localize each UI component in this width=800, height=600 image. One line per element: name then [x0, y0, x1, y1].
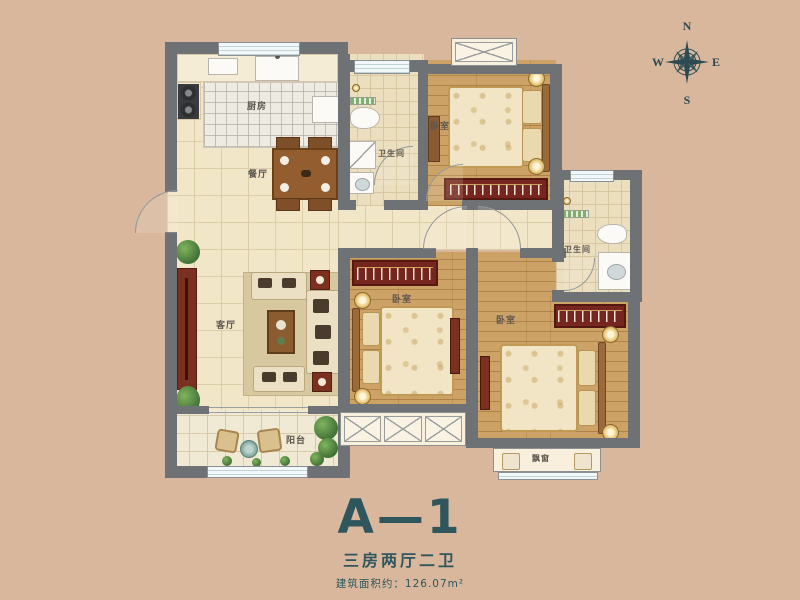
tv-board [450, 318, 460, 374]
balcony-chair [257, 428, 283, 454]
headboard [352, 308, 360, 392]
room-label-bedroom2: 卧室 [392, 292, 412, 305]
pillow [522, 128, 542, 162]
basin [607, 264, 626, 280]
wall [552, 170, 564, 262]
toilet-icon [350, 107, 380, 129]
tv-board [480, 356, 490, 410]
pillow [362, 350, 380, 384]
centerpiece [301, 170, 311, 177]
plant-icon [314, 416, 338, 440]
title-block: A—1 三房两厅二卫 建筑面积约：126.07m² [250, 494, 550, 591]
bay-window-pane [384, 416, 421, 442]
hangers [357, 267, 433, 280]
hangers [450, 184, 542, 195]
sofa [253, 366, 305, 392]
side-table [310, 270, 330, 290]
plan-area: 建筑面积约：126.07m² [250, 576, 550, 591]
wall [165, 466, 207, 478]
wall [338, 54, 350, 210]
side-table-decor [318, 378, 326, 386]
stove-icon [178, 84, 199, 119]
plate [280, 183, 289, 192]
bay-window [451, 38, 517, 66]
wall [628, 302, 640, 448]
wardrobe [352, 260, 438, 286]
headboard [598, 342, 606, 434]
bathroom-sink [598, 252, 632, 290]
bedside-lamp-icon [354, 388, 371, 405]
compass-icon: N S W E [650, 12, 724, 112]
coffee-table [267, 310, 295, 354]
svg-text:S: S [684, 93, 691, 107]
plate [321, 156, 330, 165]
plate [321, 183, 330, 192]
seat-cushion [574, 453, 592, 470]
cushion [262, 372, 276, 382]
dining-table [272, 148, 338, 200]
side-table-decor [316, 276, 324, 284]
seat-cushion [502, 453, 520, 470]
plant-icon [280, 456, 290, 466]
wall [165, 42, 177, 192]
pillow [522, 90, 542, 124]
bedside-lamp-icon [354, 292, 371, 309]
wall [338, 200, 356, 210]
tv-cabinet [177, 268, 197, 390]
bay-window-pane [425, 416, 462, 442]
window [218, 42, 300, 56]
wall [165, 232, 177, 478]
toilet-icon [597, 224, 627, 244]
window [354, 60, 410, 74]
wall [466, 438, 640, 448]
bed [448, 86, 524, 168]
wall [630, 170, 642, 302]
bay-window-pane [344, 416, 381, 442]
faucet-icon [352, 84, 360, 92]
pillow [362, 312, 380, 346]
plate [280, 156, 289, 165]
plant-icon [222, 456, 232, 466]
balcony-table [240, 440, 258, 458]
faucet-icon [563, 197, 571, 205]
table-decor [276, 320, 286, 330]
pillow [578, 390, 596, 426]
balcony-railing [207, 466, 308, 478]
side-table [312, 372, 332, 392]
plan-title: A—1 [250, 494, 550, 541]
bay-window [340, 412, 466, 446]
kitchen-cutting-board [208, 58, 238, 75]
cushion [313, 351, 329, 365]
bay-window-glass [498, 472, 598, 480]
kitchen-sink [255, 56, 299, 81]
window-plants [350, 97, 376, 105]
svg-text:E: E [712, 55, 720, 69]
bathroom-sink [349, 172, 374, 194]
sliding-door [209, 407, 308, 413]
shower-icon [349, 141, 376, 169]
wardrobe [554, 304, 626, 328]
wall [338, 248, 350, 414]
cushion [313, 299, 329, 313]
window-plants [562, 210, 589, 218]
plant-icon [176, 240, 200, 264]
dining-chair [308, 198, 332, 211]
balcony-chair [214, 428, 239, 453]
bedside-lamp-icon [602, 326, 619, 343]
pillow [578, 350, 596, 386]
floorplan-canvas: 厨房 餐厅 客厅 卧室 卧室 卧室 卫生间 卫生间 阳台 飘窗 N [0, 0, 800, 600]
headboard [542, 84, 550, 172]
svg-text:W: W [652, 55, 664, 69]
room-label-balcony: 阳台 [286, 433, 306, 446]
room-label-baywindow: 飘窗 [532, 453, 550, 464]
wall [165, 406, 209, 414]
entry-door-swing [135, 190, 178, 233]
wall [462, 200, 560, 210]
cushion [315, 325, 331, 339]
room-label-bath1: 卫生间 [378, 148, 405, 159]
sofa [251, 272, 307, 300]
room-label-bath2: 卫生间 [564, 244, 591, 255]
room-label-dining: 餐厅 [248, 167, 268, 180]
wall [384, 200, 427, 210]
wall [338, 248, 436, 258]
bay-window-pane [455, 42, 513, 62]
plan-subtitle: 三房两厅二卫 [250, 547, 550, 571]
wall [552, 292, 640, 302]
dining-chair [276, 198, 300, 211]
wall [418, 60, 428, 210]
table-decor [277, 337, 285, 345]
compass-rose: N S W E [650, 12, 724, 112]
room-label-bedroom1: 卧室 [430, 119, 450, 132]
cushion [282, 278, 296, 288]
sofa-chaise [306, 290, 340, 374]
bedside-lamp-icon [528, 158, 545, 175]
bed [380, 306, 454, 396]
fridge [312, 96, 339, 123]
plant-icon [310, 452, 324, 466]
room-label-kitchen: 厨房 [247, 99, 267, 112]
cushion [258, 278, 272, 288]
compass-n: N [683, 19, 692, 33]
bed [500, 344, 578, 432]
cushion [283, 372, 297, 382]
room-label-bedroom3: 卧室 [496, 313, 516, 326]
window [570, 170, 614, 182]
tv-icon [185, 278, 188, 380]
basin [355, 178, 370, 191]
room-label-living: 客厅 [216, 318, 236, 331]
hangers [558, 310, 621, 322]
